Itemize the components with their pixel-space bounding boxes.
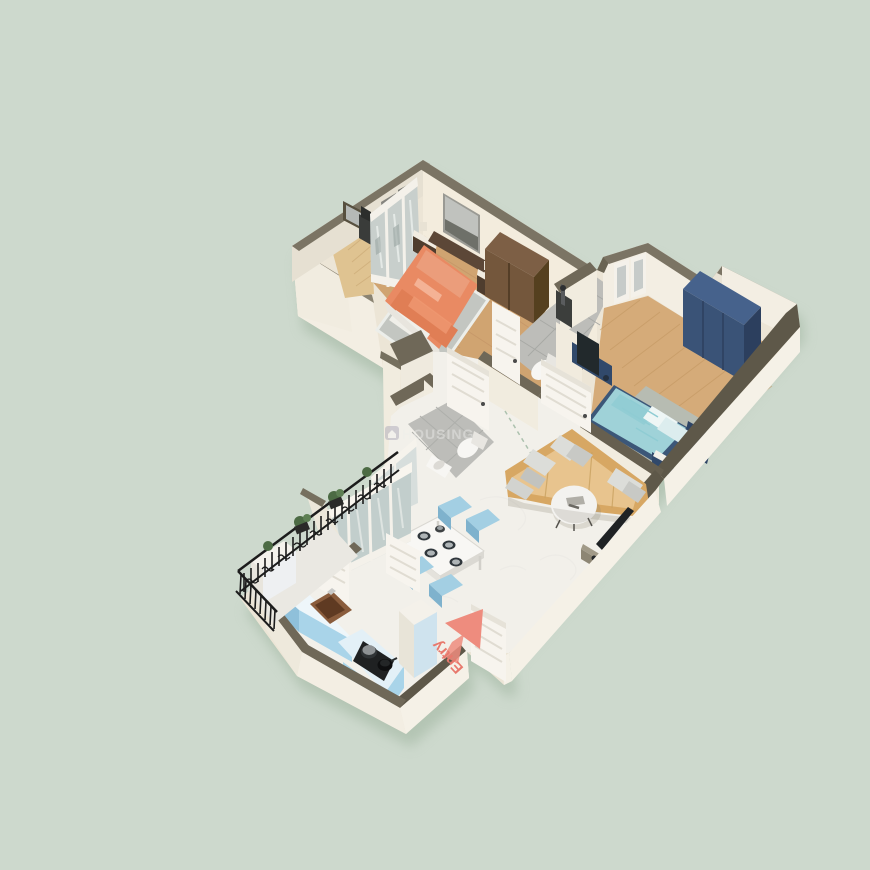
svg-text:HOUSING: HOUSING — [402, 426, 474, 442]
